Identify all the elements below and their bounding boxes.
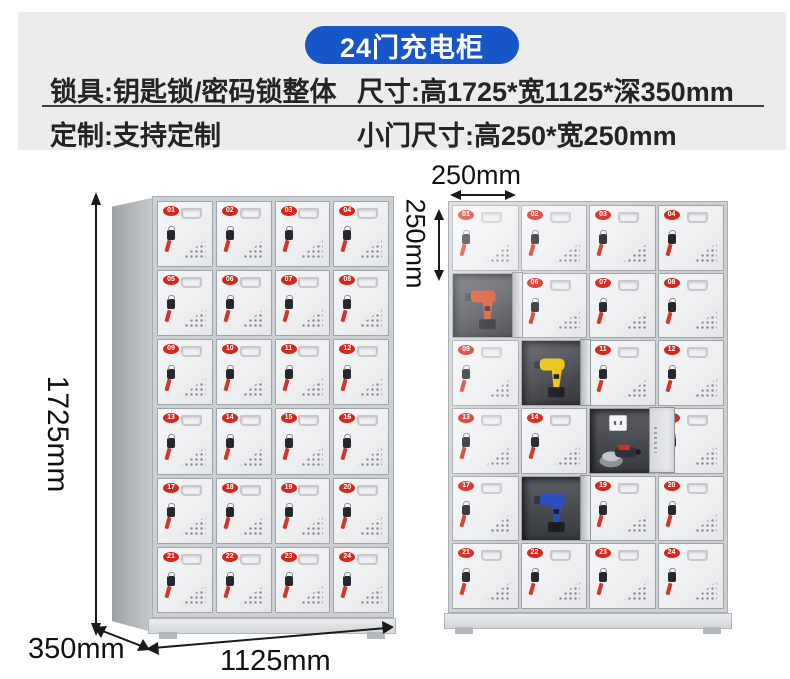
locker-door: 23: [275, 547, 331, 613]
dim-height-arrow: [88, 192, 104, 636]
locker-compartment-open: [521, 340, 588, 406]
vent-holes: [355, 377, 382, 398]
door-number-badge: 19: [281, 483, 297, 493]
door-handle: [240, 346, 261, 357]
locker-door: 04: [658, 205, 725, 271]
dim-door-height-label: 250mm: [400, 188, 431, 300]
open-door-panel: [580, 475, 591, 541]
door-handle: [550, 415, 571, 426]
door-number-badge: 12: [664, 345, 680, 355]
vent-holes: [485, 513, 512, 534]
door-handle: [357, 485, 378, 496]
padlock-icon: [668, 234, 676, 244]
right-cabinet-base: [444, 613, 732, 629]
door-handle: [550, 212, 571, 223]
locker-compartment-open: [452, 273, 519, 339]
door-number-badge: 22: [527, 548, 543, 558]
locker-door: 13: [452, 408, 519, 474]
locker-door: 05: [157, 270, 213, 336]
door-handle: [298, 485, 319, 496]
dim-height-label: 1725mm: [40, 363, 74, 505]
padlock-icon: [462, 572, 470, 582]
door-handle: [687, 347, 708, 358]
vent-holes: [179, 308, 206, 329]
door-handle: [357, 415, 378, 426]
padlock-icon: [226, 299, 234, 309]
key-tag-icon: [528, 244, 535, 257]
padlock-icon: [531, 302, 539, 312]
locker-door: 13: [157, 408, 213, 474]
key-tag-icon: [596, 379, 603, 392]
door-number-badge: 04: [339, 206, 355, 216]
door-handle: [687, 550, 708, 561]
vent-holes: [485, 378, 512, 399]
vent-holes: [179, 516, 206, 537]
key-tag-icon: [341, 517, 348, 530]
key-tag-icon: [282, 309, 289, 322]
vent-holes: [553, 581, 580, 602]
door-handle: [481, 415, 502, 426]
padlock-icon: [285, 576, 293, 586]
locker-door: 20: [658, 476, 725, 542]
door-handle: [298, 415, 319, 426]
vent-holes: [355, 516, 382, 537]
spec-panel: 24门充电柜 锁具:钥匙锁/密码锁整体 尺寸:高1725*宽1125*深350m…: [18, 12, 786, 150]
padlock-icon: [343, 507, 351, 517]
key-tag-icon: [459, 582, 466, 595]
door-number-badge: 02: [527, 210, 543, 220]
padlock-icon: [531, 234, 539, 244]
key-tag-icon: [164, 517, 171, 530]
vent-holes: [355, 585, 382, 606]
door-number-badge: 15: [281, 413, 297, 423]
key-tag-icon: [282, 586, 289, 599]
vent-holes: [622, 243, 649, 264]
vent-holes: [622, 310, 649, 331]
door-handle: [357, 277, 378, 288]
key-tag-icon: [282, 240, 289, 253]
title-badge: 24门充电柜: [305, 26, 519, 64]
door-number-badge: 24: [339, 552, 355, 562]
padlock-icon: [599, 369, 607, 379]
locker-door: 04: [333, 201, 389, 267]
door-handle: [550, 280, 571, 291]
power-socket: [609, 415, 627, 431]
key-tag-icon: [164, 240, 171, 253]
angle-grinder-icon: [596, 433, 642, 469]
door-number-badge: 21: [163, 552, 179, 562]
dim-door-width-arrow: [450, 189, 516, 201]
padlock-icon: [599, 234, 607, 244]
padlock-icon: [531, 572, 539, 582]
locker-door: 16: [333, 408, 389, 474]
key-tag-icon: [596, 244, 603, 257]
locker-door: 21: [452, 543, 519, 609]
right-cabinet-grid: 0102030406070809111213141617192021222324: [452, 205, 724, 609]
open-door-panel: [649, 407, 675, 473]
padlock-icon: [599, 302, 607, 312]
padlock-icon: [462, 234, 470, 244]
door-number-badge: 23: [281, 552, 297, 562]
key-tag-icon: [164, 586, 171, 599]
locker-door: 12: [333, 339, 389, 405]
vent-holes: [690, 378, 717, 399]
door-number-badge: 14: [527, 413, 543, 423]
vent-holes: [238, 447, 265, 468]
power-drill-icon: [464, 285, 502, 333]
door-handle: [181, 277, 202, 288]
door-number-badge: 11: [281, 344, 297, 354]
vent-holes: [690, 581, 717, 602]
padlock-icon: [599, 572, 607, 582]
spec-door-size: 小门尺寸:高250*宽250mm: [357, 114, 677, 153]
door-handle: [687, 280, 708, 291]
key-tag-icon: [223, 586, 230, 599]
power-drill-icon: [532, 353, 570, 401]
key-tag-icon: [223, 517, 230, 530]
door-handle: [298, 208, 319, 219]
key-tag-icon: [665, 312, 672, 325]
padlock-icon: [462, 369, 470, 379]
padlock-icon: [167, 369, 175, 379]
padlock-icon: [226, 507, 234, 517]
locker-compartment-open: [589, 408, 656, 474]
locker-door: 14: [521, 408, 588, 474]
door-handle: [298, 346, 319, 357]
key-tag-icon: [528, 582, 535, 595]
door-handle: [550, 550, 571, 561]
vent-holes: [622, 378, 649, 399]
vent-holes: [553, 310, 580, 331]
door-number-badge: 10: [222, 344, 238, 354]
left-cabinet: 0102030405060708091011121314151617181920…: [152, 196, 394, 618]
door-number-badge: 08: [339, 275, 355, 285]
padlock-icon: [531, 437, 539, 447]
door-handle: [181, 415, 202, 426]
vent-holes: [179, 447, 206, 468]
key-tag-icon: [459, 447, 466, 460]
padlock-icon: [462, 437, 470, 447]
right-cabinet: 0102030406070809111213141617192021222324: [448, 201, 728, 613]
padlock-icon: [226, 230, 234, 240]
vent-holes: [622, 581, 649, 602]
door-number-badge: 13: [163, 413, 179, 423]
locker-door: 14: [216, 408, 272, 474]
door-number-badge: 01: [458, 210, 474, 220]
padlock-icon: [343, 299, 351, 309]
door-number-badge: 23: [595, 548, 611, 558]
door-number-badge: 09: [458, 345, 474, 355]
vent-holes: [238, 239, 265, 260]
door-number-badge: 03: [595, 210, 611, 220]
door-handle: [240, 485, 261, 496]
vent-holes: [296, 516, 323, 537]
locker-door: 09: [157, 339, 213, 405]
vent-holes: [355, 308, 382, 329]
dim-depth-arrow: [92, 622, 154, 654]
vent-holes: [238, 516, 265, 537]
left-cabinet-grid: 0102030405060708091011121314151617181920…: [157, 201, 389, 613]
door-handle: [618, 212, 639, 223]
door-number-badge: 07: [281, 275, 297, 285]
vent-holes: [355, 239, 382, 260]
padlock-icon: [285, 299, 293, 309]
vent-holes: [690, 446, 717, 467]
door-handle: [481, 212, 502, 223]
door-number-badge: 19: [595, 481, 611, 491]
door-number-badge: 12: [339, 344, 355, 354]
key-tag-icon: [164, 309, 171, 322]
padlock-icon: [343, 438, 351, 448]
locker-door: 06: [521, 273, 588, 339]
open-door-panel: [580, 339, 591, 405]
left-cabinet-side-panel: [112, 198, 152, 632]
locker-door: 01: [157, 201, 213, 267]
locker-door: 03: [275, 201, 331, 267]
page-title: 24门充电柜: [340, 26, 484, 65]
door-number-badge: 06: [527, 278, 543, 288]
locker-door: 11: [589, 340, 656, 406]
padlock-icon: [343, 369, 351, 379]
locker-door: 12: [658, 340, 725, 406]
door-handle: [181, 208, 202, 219]
key-tag-icon: [341, 586, 348, 599]
padlock-icon: [462, 505, 470, 515]
door-number-badge: 07: [595, 278, 611, 288]
locker-door: 19: [275, 478, 331, 544]
key-tag-icon: [665, 244, 672, 257]
padlock-icon: [668, 505, 676, 515]
padlock-icon: [285, 438, 293, 448]
door-handle: [181, 485, 202, 496]
vent-holes: [485, 581, 512, 602]
padlock-icon: [226, 576, 234, 586]
locker-door: 07: [589, 273, 656, 339]
key-tag-icon: [341, 448, 348, 461]
locker-door: 24: [333, 547, 389, 613]
padlock-icon: [167, 299, 175, 309]
locker-door: 02: [521, 205, 588, 271]
open-door-panel: [512, 272, 523, 338]
locker-door: 22: [521, 543, 588, 609]
door-number-badge: 13: [458, 413, 474, 423]
spec-lock-type: 锁具:钥匙锁/密码锁整体: [50, 70, 337, 109]
vent-holes: [296, 585, 323, 606]
locker-door: 03: [589, 205, 656, 271]
door-number-badge: 21: [458, 548, 474, 558]
key-tag-icon: [341, 378, 348, 391]
padlock-icon: [167, 230, 175, 240]
locker-door: 09: [452, 340, 519, 406]
spec-customization: 定制:支持定制: [50, 114, 221, 153]
key-tag-icon: [459, 379, 466, 392]
locker-door: 07: [275, 270, 331, 336]
vent-holes: [485, 243, 512, 264]
key-tag-icon: [596, 515, 603, 528]
locker-door: 01: [452, 205, 519, 271]
door-handle: [481, 483, 502, 494]
locker-door: 23: [589, 543, 656, 609]
vent-holes: [238, 377, 265, 398]
key-tag-icon: [665, 515, 672, 528]
locker-door: 11: [275, 339, 331, 405]
key-tag-icon: [341, 309, 348, 322]
locker-door: 08: [658, 273, 725, 339]
door-number-badge: 06: [222, 275, 238, 285]
key-tag-icon: [528, 312, 535, 325]
door-number-badge: 14: [222, 413, 238, 423]
vent-holes: [179, 239, 206, 260]
door-handle: [687, 212, 708, 223]
vent-holes: [238, 308, 265, 329]
key-tag-icon: [459, 244, 466, 257]
locker-door: 02: [216, 201, 272, 267]
key-tag-icon: [282, 517, 289, 530]
key-tag-icon: [596, 582, 603, 595]
padlock-icon: [668, 302, 676, 312]
locker-door: 19: [589, 476, 656, 542]
door-handle: [618, 483, 639, 494]
key-tag-icon: [282, 378, 289, 391]
padlock-icon: [167, 438, 175, 448]
padlock-icon: [285, 507, 293, 517]
locker-door: 22: [216, 547, 272, 613]
door-handle: [298, 277, 319, 288]
vent-holes: [238, 585, 265, 606]
vent-holes: [553, 446, 580, 467]
vent-holes: [690, 243, 717, 264]
padlock-icon: [668, 369, 676, 379]
vent-holes: [622, 513, 649, 534]
door-handle: [618, 280, 639, 291]
vent-holes: [296, 447, 323, 468]
padlock-icon: [599, 505, 607, 515]
power-drill-icon: [532, 488, 570, 536]
door-handle: [357, 208, 378, 219]
vent-holes: [296, 239, 323, 260]
locker-door: 17: [452, 476, 519, 542]
key-tag-icon: [164, 378, 171, 391]
door-number-badge: 11: [595, 345, 611, 355]
door-handle: [481, 347, 502, 358]
vent-holes: [355, 447, 382, 468]
door-handle: [357, 346, 378, 357]
dim-door-width-label: 250mm: [431, 160, 521, 191]
door-handle: [240, 415, 261, 426]
vent-holes: [553, 243, 580, 264]
key-tag-icon: [223, 378, 230, 391]
vent-holes: [485, 446, 512, 467]
key-tag-icon: [223, 448, 230, 461]
door-handle: [687, 483, 708, 494]
door-number-badge: 05: [163, 275, 179, 285]
vent-holes: [296, 308, 323, 329]
locker-door: 15: [275, 408, 331, 474]
key-tag-icon: [164, 448, 171, 461]
door-number-badge: 18: [222, 483, 238, 493]
spec-overall-size: 尺寸:高1725*宽1125*深350mm: [357, 70, 734, 109]
divider-line: [42, 105, 764, 107]
dim-door-height-arrow: [433, 209, 445, 281]
key-tag-icon: [528, 447, 535, 460]
door-number-badge: 01: [163, 206, 179, 216]
key-tag-icon: [341, 240, 348, 253]
door-handle: [481, 550, 502, 561]
locker-door: 06: [216, 270, 272, 336]
key-tag-icon: [596, 312, 603, 325]
door-handle: [240, 554, 261, 565]
door-handle: [687, 415, 708, 426]
padlock-icon: [167, 507, 175, 517]
locker-door: 18: [216, 478, 272, 544]
door-number-badge: 02: [222, 206, 238, 216]
door-number-badge: 08: [664, 278, 680, 288]
door-number-badge: 22: [222, 552, 238, 562]
locker-door: 24: [658, 543, 725, 609]
vent-holes: [690, 513, 717, 534]
padlock-icon: [226, 369, 234, 379]
locker-door: 10: [216, 339, 272, 405]
door-number-badge: 03: [281, 206, 297, 216]
locker-compartment-open: [521, 476, 588, 542]
padlock-icon: [668, 572, 676, 582]
door-number-badge: 20: [664, 481, 680, 491]
padlock-icon: [343, 230, 351, 240]
locker-door: 17: [157, 478, 213, 544]
locker-door: 21: [157, 547, 213, 613]
key-tag-icon: [459, 515, 466, 528]
door-handle: [357, 554, 378, 565]
padlock-icon: [167, 576, 175, 586]
dim-width-label: 1125mm: [220, 645, 331, 678]
vent-holes: [296, 377, 323, 398]
door-handle: [181, 346, 202, 357]
door-number-badge: 09: [163, 344, 179, 354]
vent-holes: [179, 585, 206, 606]
padlock-icon: [343, 576, 351, 586]
door-handle: [240, 277, 261, 288]
vent-holes: [690, 310, 717, 331]
locker-door: 20: [333, 478, 389, 544]
key-tag-icon: [665, 582, 672, 595]
locker-door: 08: [333, 270, 389, 336]
door-number-badge: 04: [664, 210, 680, 220]
key-tag-icon: [665, 379, 672, 392]
door-handle: [181, 554, 202, 565]
key-tag-icon: [223, 309, 230, 322]
key-tag-icon: [282, 448, 289, 461]
vent-holes: [179, 377, 206, 398]
door-number-badge: 24: [664, 548, 680, 558]
door-handle: [618, 347, 639, 358]
door-handle: [618, 550, 639, 561]
key-tag-icon: [223, 240, 230, 253]
product-spec-image: 24门充电柜 锁具:钥匙锁/密码锁整体 尺寸:高1725*宽1125*深350m…: [0, 0, 790, 679]
padlock-icon: [226, 438, 234, 448]
door-number-badge: 17: [458, 481, 474, 491]
door-number-badge: 20: [339, 483, 355, 493]
door-number-badge: 17: [163, 483, 179, 493]
door-handle: [298, 554, 319, 565]
padlock-icon: [285, 369, 293, 379]
door-handle: [240, 208, 261, 219]
door-number-badge: 16: [339, 413, 355, 423]
